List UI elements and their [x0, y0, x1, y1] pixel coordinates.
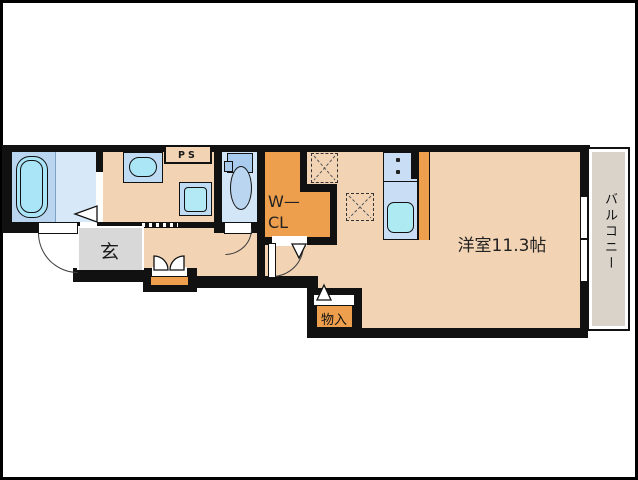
shoe-cabinet-opening — [152, 267, 187, 276]
storage-opening — [314, 295, 354, 305]
wall-hall-bottom — [190, 276, 318, 288]
walk-in-closet-floor-ext — [300, 192, 330, 237]
wall-kitchen-stub-top — [411, 152, 419, 179]
bathroom-door-opening — [96, 172, 103, 222]
bathtub — [16, 156, 48, 218]
kitchen-sink — [387, 202, 414, 233]
wall-washroom-toilet — [214, 152, 222, 228]
washbasin — [129, 157, 157, 177]
bathroom-divider-line — [55, 152, 56, 222]
wall-toilet-right — [257, 152, 265, 280]
appliance-space-marker — [346, 193, 374, 221]
kitchen-burner-dot-2 — [396, 170, 400, 174]
bathtub-inner-line — [20, 160, 43, 213]
pipe-space-label: PS — [178, 150, 198, 161]
washing-machine-drum — [184, 187, 207, 212]
bathroom-floor-right-panel — [55, 152, 96, 222]
wall-left — [2, 145, 12, 233]
toilet-flush-box — [224, 161, 233, 172]
wcl-label-line2: CL — [268, 213, 288, 232]
washroom-sliding-door-dashes — [142, 223, 178, 227]
wall-top — [2, 145, 590, 152]
main-room-label: 洋室11.3帖 — [442, 231, 562, 256]
wall-bathroom-right — [96, 152, 103, 174]
kitchen-unit-divider — [383, 181, 418, 182]
kitchen-counter — [418, 152, 430, 240]
main-room-door-leaf — [268, 243, 276, 278]
kitchen-burner-dot-1 — [396, 158, 400, 162]
wall-entrance-bottom — [73, 268, 145, 282]
storage-label: 物入 — [321, 309, 347, 328]
wcl-label-line1: W— — [268, 192, 300, 211]
refrigerator-space-marker — [311, 153, 338, 183]
entrance-label: 玄 — [100, 237, 119, 264]
toilet-bowl — [230, 166, 252, 210]
entrance-door-arc — [38, 233, 78, 273]
wall-bottom-main — [307, 328, 588, 338]
shoe-cabinet — [150, 276, 189, 286]
balcony-label: バルコニー — [600, 192, 619, 302]
floor-plan: 玄 PS W— CL 物入 バルコニー 洋室11.3帖 — [0, 0, 638, 480]
wall-wcl-right — [330, 184, 337, 245]
